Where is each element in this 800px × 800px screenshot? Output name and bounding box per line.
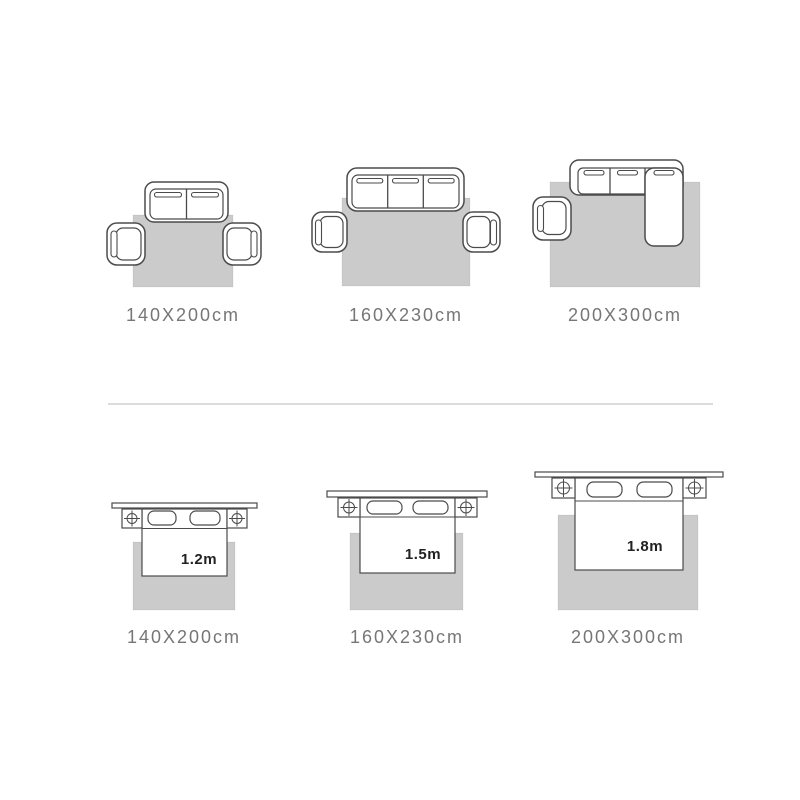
pillow-icon	[413, 501, 448, 514]
nightstand-left-icon	[552, 478, 575, 498]
sofa-3-seat-rug-diagram	[300, 150, 510, 300]
nightstand-right-icon	[455, 498, 477, 517]
pillow-icon	[148, 511, 176, 525]
bed-1-2m-rug-diagram: 1.2m	[105, 495, 265, 615]
bed-1-8m-rug-diagram: 1.8m	[530, 465, 750, 615]
rug-size-label: 140X200cm	[93, 305, 273, 326]
sectional-sofa-rug-diagram	[520, 145, 740, 300]
headboard-icon	[327, 491, 487, 497]
rug-size-label: 200X300cm	[538, 627, 718, 648]
nightstand-left-icon	[338, 498, 360, 517]
armchair-left-icon	[533, 197, 571, 240]
armchair-left-icon	[312, 212, 347, 252]
nightstand-right-icon	[683, 478, 706, 498]
pillow-icon	[367, 501, 402, 514]
chaise-section	[645, 168, 683, 246]
bed-width-label: 1.8m	[627, 538, 663, 555]
bed-width-label: 1.2m	[181, 551, 217, 568]
armchair-right-icon	[223, 223, 261, 265]
rug-size-label: 160X230cm	[317, 627, 497, 648]
bed-1-5m-rug-diagram: 1.5m	[320, 485, 500, 615]
rug-140x200	[133, 215, 233, 287]
pillow-icon	[190, 511, 220, 525]
bed-width-label: 1.5m	[405, 546, 441, 563]
nightstand-left-icon	[122, 509, 142, 528]
armchair-right-icon	[463, 212, 500, 252]
rug-size-label: 160X230cm	[316, 305, 496, 326]
sofa-2-seat-icon	[145, 182, 228, 222]
armchair-left-icon	[107, 223, 145, 265]
rug-size-label: 200X300cm	[535, 305, 715, 326]
headboard-icon	[112, 503, 257, 508]
nightstand-right-icon	[227, 509, 247, 528]
sofa-3-seat-icon	[347, 168, 464, 211]
pillow-icon	[587, 482, 622, 497]
headboard-icon	[535, 472, 723, 477]
pillow-icon	[637, 482, 672, 497]
section-divider	[108, 403, 713, 405]
rug-size-label: 140X200cm	[94, 627, 274, 648]
sofa-2-seat-rug-diagram	[100, 155, 270, 295]
rug-size-guide: 140X200cm 160X230cm	[0, 0, 800, 800]
